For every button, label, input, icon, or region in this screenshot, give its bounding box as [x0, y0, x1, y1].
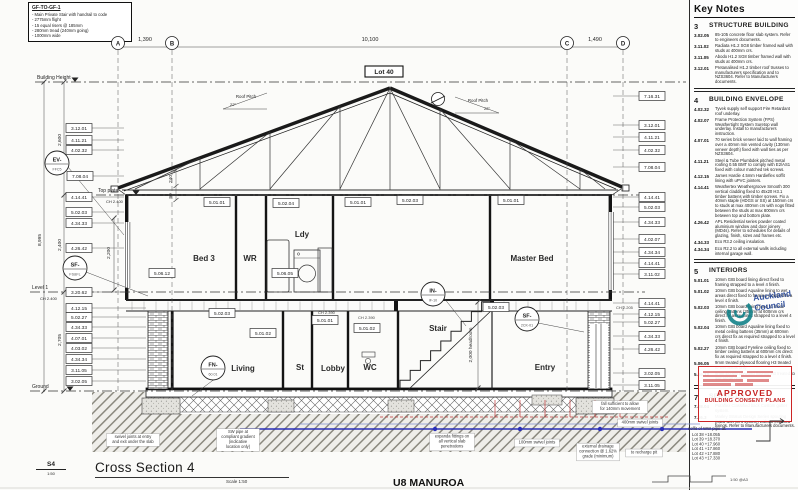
stair-steps	[400, 302, 494, 390]
key-note-item: 4.02.32Tyvek supply self support Fire Re…	[694, 107, 795, 116]
ref-tag	[272, 269, 298, 278]
key-note-item: 4.34.33Eco R3.2 ceiling insulation.	[694, 240, 795, 245]
ref-tag	[639, 259, 665, 268]
roof-pitch-annotations: Roof Pitch22°Roof Pitch22°	[223, 93, 499, 113]
svg-text:5.01.01: 5.01.01	[503, 198, 519, 204]
ref-tag	[354, 324, 380, 333]
roof-vent-cowl	[432, 93, 445, 106]
key-note-text: 70 series brick veneer laid to wall fram…	[715, 138, 795, 157]
key-notes-section-header: 4BUILDING ENVELOPE	[694, 96, 795, 105]
key-note-text: APL Residential series powder coated alu…	[715, 220, 795, 239]
ref-tag	[639, 318, 665, 327]
key-note-code: 4.12.15	[694, 174, 715, 183]
stair-note-lines: - Main Private Stair with handrail to co…	[32, 12, 128, 38]
ref-tag	[66, 304, 92, 313]
key-note-item: 3.02.0585-105 concrete floor slab system…	[694, 33, 795, 42]
ref-tag	[639, 121, 665, 130]
key-note-text: Tyvek supply self support Fire Retardant…	[715, 107, 795, 116]
key-note-code: 4.34.34	[694, 247, 715, 256]
key-note-item: 4.07.0170 series brick veneer laid to wa…	[694, 138, 795, 157]
circle-tag	[45, 151, 69, 175]
svg-text:C: C	[565, 42, 570, 48]
ref-tag	[209, 309, 235, 318]
svg-text:4.34.33: 4.34.33	[71, 325, 87, 331]
key-note-code: 4.14.41	[694, 185, 715, 218]
ref-tag	[66, 355, 92, 364]
ref-tag	[639, 146, 665, 155]
key-note-code: 3.12.01	[694, 66, 715, 85]
svg-text:5.02.03: 5.02.03	[214, 311, 230, 317]
section-divider	[694, 259, 795, 263]
key-notes-section-header: 3STRUCTURE BUILDING	[694, 22, 795, 31]
svg-text:SW pipe at: SW pipe at	[228, 429, 249, 434]
ref-tag	[639, 270, 665, 279]
ref-tag	[483, 303, 509, 312]
svg-text:FFC5: FFC5	[53, 168, 62, 172]
svg-text:penetrations: penetrations	[441, 443, 464, 448]
svg-text:4.26.42: 4.26.42	[71, 246, 87, 252]
ref-tag	[66, 366, 92, 375]
key-note-item: 3.12.01Pretanalised H1.2 timber roof tru…	[694, 66, 795, 85]
key-note-item: 4.34.34Eco R2.2 to all external walls in…	[694, 247, 795, 256]
ground-notes: swivel joints at entryand exit under the…	[106, 401, 662, 461]
key-note-text: Radiata H1.2 SG8 timber framed wall with…	[715, 44, 795, 53]
ref-tag	[312, 316, 338, 325]
svg-text:FN-: FN-	[208, 363, 217, 369]
svg-text:CH 2.205: CH 2.205	[616, 305, 634, 310]
svg-text:Lobby: Lobby	[321, 364, 346, 373]
svg-text:7.16.31: 7.16.31	[644, 94, 660, 100]
svg-text:2,200: 2,200	[106, 247, 112, 259]
key-note-code: 4.11.21	[694, 159, 715, 173]
key-note-code: 4.02.07	[694, 118, 715, 137]
svg-text:expanda fittings on: expanda fittings on	[435, 434, 470, 439]
footing	[576, 398, 614, 414]
roof-structure	[111, 88, 629, 195]
ref-tag	[204, 198, 230, 207]
svg-text:90: 90	[168, 193, 174, 199]
key-note-code: 3.11.02	[694, 44, 715, 53]
svg-text:Ground: Ground	[32, 384, 49, 390]
svg-text:SF-: SF-	[523, 314, 532, 320]
ref-tag	[66, 146, 92, 155]
small-level-texts: CH 2.390CH 2.390CH 2.2051:50 @A3	[318, 305, 749, 482]
key-note-item: 4.14.41Weathertex Weathergroove Smooth 3…	[694, 185, 795, 218]
ref-tag	[639, 248, 665, 257]
svg-text:240: 240	[168, 175, 174, 183]
svg-text:60.01: 60.01	[209, 373, 218, 377]
svg-text:4.02.32: 4.02.32	[644, 148, 660, 154]
key-note-code: 5.02.27	[694, 346, 715, 360]
svg-text:4.11.21: 4.11.21	[71, 138, 87, 144]
section-title: INTERIORS	[709, 267, 748, 276]
svg-text:3.12.01: 3.12.01	[71, 126, 87, 132]
stamp-reference-line	[703, 375, 787, 378]
ref-tag	[66, 377, 92, 386]
key-note-item: 4.12.15James Hardie 4.5mm Hardieflex sof…	[694, 174, 795, 183]
ref-tag	[66, 193, 92, 202]
brick-veneer	[148, 311, 610, 389]
svg-text:8,995: 8,995	[37, 234, 43, 246]
stamp-subtitle-text: BUILDING CONSENT PLANS	[699, 398, 791, 404]
stair-note-title: GF-TO-GF-1	[32, 5, 128, 11]
ref-tag	[66, 313, 92, 322]
svg-text:4.34.33: 4.34.33	[644, 220, 660, 226]
window	[124, 222, 131, 288]
svg-text:4.03.02: 4.03.02	[71, 346, 87, 352]
svg-text:Level 1: Level 1	[32, 285, 48, 291]
section-marker-scale: 1:50	[34, 471, 68, 476]
mid-floor	[126, 300, 612, 311]
svg-text:Ldy: Ldy	[295, 230, 310, 239]
fixtures	[267, 240, 375, 364]
ref-tag	[345, 198, 371, 207]
key-note-text: Steel & Tube Plumbdek pitched metal roof…	[715, 159, 795, 173]
lot-label: Lot 40	[365, 66, 403, 77]
svg-text:CH 2.400: CH 2.400	[40, 296, 58, 301]
svg-text:4.14.41: 4.14.41	[644, 261, 660, 267]
svg-text:Lot 40: Lot 40	[374, 69, 394, 76]
svg-text:2,000 headroom: 2,000 headroom	[468, 328, 474, 363]
svg-text:Roof Pitch: Roof Pitch	[236, 94, 257, 99]
svg-text:7.08.04: 7.08.04	[72, 174, 88, 180]
circle-tag	[421, 282, 445, 306]
stair-note-box: GF-TO-GF-1 - Main Private Stair with han…	[28, 2, 132, 42]
svg-text:and exit under the slab: and exit under the slab	[112, 439, 154, 444]
level-lines: Building HeightTop plateCH 2.400Level 1C…	[30, 75, 686, 391]
svg-text:WC: WC	[363, 363, 377, 372]
svg-text:5.06.12: 5.06.12	[154, 271, 170, 277]
ref-tag	[639, 310, 665, 319]
washing-machine-icon	[294, 250, 320, 292]
svg-text:external drainage: external drainage	[582, 444, 614, 449]
svg-text:5.06.05: 5.06.05	[277, 271, 293, 277]
svg-text:5.02.03: 5.02.03	[488, 305, 504, 311]
ref-tag	[66, 334, 92, 343]
ref-tag	[66, 323, 92, 332]
svg-text:Stair: Stair	[429, 324, 447, 333]
svg-text:connection @ 1.62%: connection @ 1.62%	[579, 448, 617, 453]
window	[608, 212, 615, 290]
footing	[268, 400, 294, 412]
svg-text:400mm swivel joints: 400mm swivel joints	[622, 419, 659, 424]
reference-tags: 3.12.014.11.214.02.327.08.044.14.415.02.…	[66, 92, 665, 390]
grid-bubble	[617, 37, 630, 50]
stamp-reference-line	[703, 379, 787, 382]
svg-text:4.14.41: 4.14.41	[644, 301, 660, 307]
ref-tag	[66, 219, 92, 228]
svg-text:Entry: Entry	[535, 363, 556, 372]
svg-text:compliant gradient: compliant gradient	[221, 434, 255, 439]
svg-text:3.11.02: 3.11.02	[644, 272, 660, 278]
svg-text:5.02.03: 5.02.03	[402, 198, 418, 204]
svg-text:5.02.03: 5.02.03	[644, 205, 660, 211]
wc-basin-icon	[362, 352, 375, 357]
svg-text:4.14.41: 4.14.41	[71, 195, 87, 201]
ref-tag	[639, 369, 665, 378]
footing	[388, 400, 414, 412]
key-note-item: 5.01.0110mm GIB board lining direct fixe…	[694, 278, 795, 287]
svg-text:5.01.02: 5.01.02	[255, 331, 271, 337]
svg-text:to recharge pit: to recharge pit	[631, 449, 658, 454]
left-dimension-labels: 8,9952,6002,4002,7052,200240902,000 head…	[37, 134, 474, 363]
section-title: STRUCTURE BUILDING	[709, 22, 789, 31]
gutter	[622, 185, 629, 191]
approval-stamp: APPROVED BUILDING CONSENT PLANS	[698, 366, 792, 422]
svg-text:A: A	[116, 42, 121, 48]
key-note-text: Abodo H1.2 SG8 timber framed wall with s…	[715, 55, 795, 64]
svg-text:Roof Pitch: Roof Pitch	[468, 98, 489, 103]
svg-text:22°: 22°	[230, 102, 236, 107]
ref-tag	[639, 203, 665, 212]
svg-text:SF-: SF-	[71, 263, 80, 269]
key-note-code: 5.01.02	[694, 289, 715, 303]
key-note-item: 4.11.21Steel & Tube Plumbdek pitched met…	[694, 159, 795, 173]
svg-text:4.34.34: 4.34.34	[71, 357, 87, 363]
key-note-text: James Hardie 4.5mm Hardieflex soffit lin…	[715, 174, 795, 183]
svg-text:2CK-01: 2CK-01	[521, 324, 533, 328]
key-note-code: 4.07.01	[694, 138, 715, 157]
svg-text:4.14.41: 4.14.41	[644, 195, 660, 201]
svg-text:4.12.15: 4.12.15	[71, 306, 87, 312]
dimension-lines	[42, 45, 626, 394]
ref-tag	[498, 196, 524, 205]
section-number: 5	[694, 267, 709, 276]
svg-text:St: St	[296, 363, 304, 372]
ref-tag	[639, 218, 665, 227]
svg-text:FS&FL: FS&FL	[69, 273, 80, 277]
key-note-code: 4.02.32	[694, 107, 715, 116]
key-note-text: Weathertex Weathergroove Smooth 300 vert…	[715, 185, 795, 218]
svg-text:3.02.05: 3.02.05	[644, 371, 660, 377]
section-marker-divider	[36, 469, 66, 470]
key-note-text: 85-105 concrete floor slab system. Refer…	[715, 33, 795, 42]
svg-text:5.02.04: 5.02.04	[278, 201, 294, 207]
svg-text:3.02.05: 3.02.05	[71, 379, 87, 385]
grid-bubble	[166, 37, 179, 50]
ref-tag	[66, 288, 92, 297]
cabinet-icon	[318, 248, 332, 292]
svg-text:4.26.42: 4.26.42	[644, 347, 660, 353]
svg-text:5.01.01: 5.01.01	[209, 200, 225, 206]
svg-text:10,100: 10,100	[362, 37, 379, 43]
svg-text:5.02.27: 5.02.27	[644, 320, 660, 326]
svg-text:3.12.01: 3.12.01	[644, 123, 660, 129]
entry-door	[590, 324, 608, 388]
svg-text:4.12.15: 4.12.15	[644, 312, 660, 318]
ref-tag	[639, 381, 665, 390]
key-note-code: 3.02.05	[694, 33, 715, 42]
svg-text:Top plate: Top plate	[98, 188, 119, 194]
ref-tag	[273, 199, 299, 208]
svg-text:WR: WR	[243, 254, 257, 263]
svg-text:4.07.01: 4.07.01	[71, 336, 87, 342]
svg-text:(indicative: (indicative	[229, 439, 248, 444]
svg-text:EV-: EV-	[53, 158, 62, 164]
ref-tag	[639, 299, 665, 308]
grid-bubble	[561, 37, 574, 50]
ref-tag	[639, 133, 665, 142]
ref-tag	[639, 332, 665, 341]
circle-tag	[63, 256, 87, 280]
gutter	[111, 186, 118, 192]
walls	[125, 195, 612, 390]
section-number: 3	[694, 22, 709, 31]
ref-tag	[149, 269, 175, 278]
roof-truss	[122, 88, 618, 190]
stamp-approved-text: APPROVED	[699, 388, 791, 398]
key-notes-title: Key Notes	[694, 4, 795, 18]
svg-text:CH 2.390: CH 2.390	[318, 310, 336, 315]
key-notes-section-header: 5INTERIORS	[694, 267, 795, 276]
section-marker-id: S4	[34, 461, 68, 468]
svg-text:1,490: 1,490	[588, 37, 602, 43]
ref-tag	[639, 345, 665, 354]
key-note-item: 4.26.42APL Residential series powder coa…	[694, 220, 795, 239]
cross-section-drawing: ABCD1,39010,1001,490Building HeightTop p…	[0, 0, 798, 490]
svg-text:IN-: IN-	[429, 289, 437, 295]
svg-text:Living: Living	[231, 364, 255, 373]
top-dimensions: 1,39010,1001,490	[138, 37, 602, 43]
section-divider	[694, 88, 795, 92]
section-marker: S4 1:50	[34, 461, 68, 476]
key-note-code: 4.34.33	[694, 240, 715, 245]
drawing-title: Cross Section 4	[95, 460, 289, 478]
svg-text:grade (minimum): grade (minimum)	[583, 453, 615, 458]
svg-text:5.01.02: 5.01.02	[359, 326, 375, 332]
ref-tag	[67, 172, 93, 181]
svg-text:D: D	[621, 42, 626, 48]
svg-text:all vertical slab: all vertical slab	[439, 438, 467, 443]
cross-section-sheet: Key Notes 3STRUCTURE BUILDING3.02.0585-1…	[0, 0, 798, 490]
ref-tag	[66, 124, 92, 133]
ref-tag	[639, 193, 665, 202]
ref-tag	[66, 244, 92, 253]
stamp-reference-line	[703, 383, 787, 386]
drawing-scale: Scale 1:50	[226, 479, 247, 484]
room-labels: Bed 3WRLdyMaster BedLivingStLobbyWCStair…	[193, 230, 556, 373]
svg-text:3.20.62: 3.20.62	[71, 290, 87, 296]
ref-tag	[250, 329, 276, 338]
ref-tag	[66, 136, 92, 145]
svg-text:22°: 22°	[484, 106, 490, 111]
footing	[142, 398, 180, 414]
key-note-code: 5.02.04	[694, 325, 715, 344]
svg-text:4.34.33: 4.34.33	[644, 334, 660, 340]
svg-text:4.02.32: 4.02.32	[71, 148, 87, 154]
key-note-text: Frame Protection System (FPS) Weathertig…	[715, 118, 795, 137]
ref-tag	[639, 163, 665, 172]
svg-text:3.11.05: 3.11.05	[644, 383, 660, 389]
key-note-code: 3.11.05	[694, 55, 715, 64]
grid-lines: ABCD	[112, 37, 630, 393]
ref-tag	[66, 208, 92, 217]
svg-text:CH 2.400: CH 2.400	[106, 199, 124, 204]
circle-tag	[515, 307, 539, 331]
svg-text:IF-10: IF-10	[429, 299, 437, 303]
svg-text:Master Bed: Master Bed	[510, 254, 553, 263]
svg-text:2,600: 2,600	[57, 134, 63, 146]
ref-tag	[397, 196, 423, 205]
hot-water-cylinder-icon	[267, 240, 289, 292]
key-note-item: 4.02.07Frame Protection System (FPS) Wea…	[694, 118, 795, 137]
svg-text:fall sufficient to allow: fall sufficient to allow	[601, 401, 639, 406]
section-title: BUILDING ENVELOPE	[709, 96, 784, 105]
stamp-reference-line	[703, 371, 787, 374]
svg-text:location only): location only)	[226, 444, 251, 449]
svg-text:1,390: 1,390	[138, 37, 152, 43]
key-note-code: 4.26.42	[694, 220, 715, 239]
key-note-item: 3.11.02Radiata H1.2 SG8 timber framed wa…	[694, 44, 795, 53]
key-note-code: 5.02.03	[694, 305, 715, 324]
svg-text:swivel joints at entry: swivel joints at entry	[115, 434, 153, 439]
svg-text:Building Height: Building Height	[37, 75, 71, 81]
svg-text:5.01.01: 5.01.01	[350, 200, 366, 206]
key-note-text: Eco R2.2 to all external walls including…	[715, 247, 795, 256]
svg-text:CH 2.390: CH 2.390	[358, 315, 376, 320]
auckland-council-stamp: Auckland Council	[723, 287, 798, 355]
stair-note-line: - 1000mm wide	[32, 33, 128, 38]
ref-tag	[639, 235, 665, 244]
circle-tags: EV-FFC5SF-FS&FLFN-60.01IN-IF-10SF-2CK-01	[45, 151, 584, 396]
svg-text:4.34.34: 4.34.34	[644, 250, 660, 256]
key-note-text: Eco R3.2 ceiling insulation.	[715, 240, 765, 245]
svg-text:for 140mm movement: for 140mm movement	[600, 406, 641, 411]
svg-text:3.11.05: 3.11.05	[71, 368, 87, 374]
svg-text:2,705: 2,705	[57, 334, 63, 346]
key-note-item: 3.11.05Abodo H1.2 SG8 timber framed wall…	[694, 55, 795, 64]
svg-text:5.02.03: 5.02.03	[71, 210, 87, 216]
project-name: U8 MANUROA	[393, 477, 464, 489]
svg-text:2,400: 2,400	[57, 239, 63, 251]
svg-text:5.01.01: 5.01.01	[317, 318, 333, 324]
key-note-code: 5.01.01	[694, 278, 715, 287]
key-note-text: 10mm GIB board lining direct fixed to fr…	[715, 278, 795, 287]
svg-text:Bed 3: Bed 3	[193, 254, 215, 263]
svg-text:7.08.04: 7.08.04	[644, 165, 660, 171]
svg-text:B: B	[170, 42, 175, 48]
svg-text:100mm swivel joints: 100mm swivel joints	[519, 439, 556, 444]
svg-text:5.02.27: 5.02.27	[71, 315, 87, 321]
circle-tag	[201, 356, 225, 380]
footing	[532, 395, 562, 405]
windows-doors	[124, 212, 614, 388]
svg-text:4.34.33: 4.34.33	[71, 221, 87, 227]
ref-tag	[66, 344, 92, 353]
section-number: 4	[694, 96, 709, 105]
svg-text:4.02.07: 4.02.07	[644, 237, 660, 243]
svg-text:4.11.21: 4.11.21	[644, 135, 660, 141]
key-note-text: Pretanalised H1.2 timber roof trusses to…	[715, 66, 795, 85]
ref-tag	[639, 92, 665, 101]
